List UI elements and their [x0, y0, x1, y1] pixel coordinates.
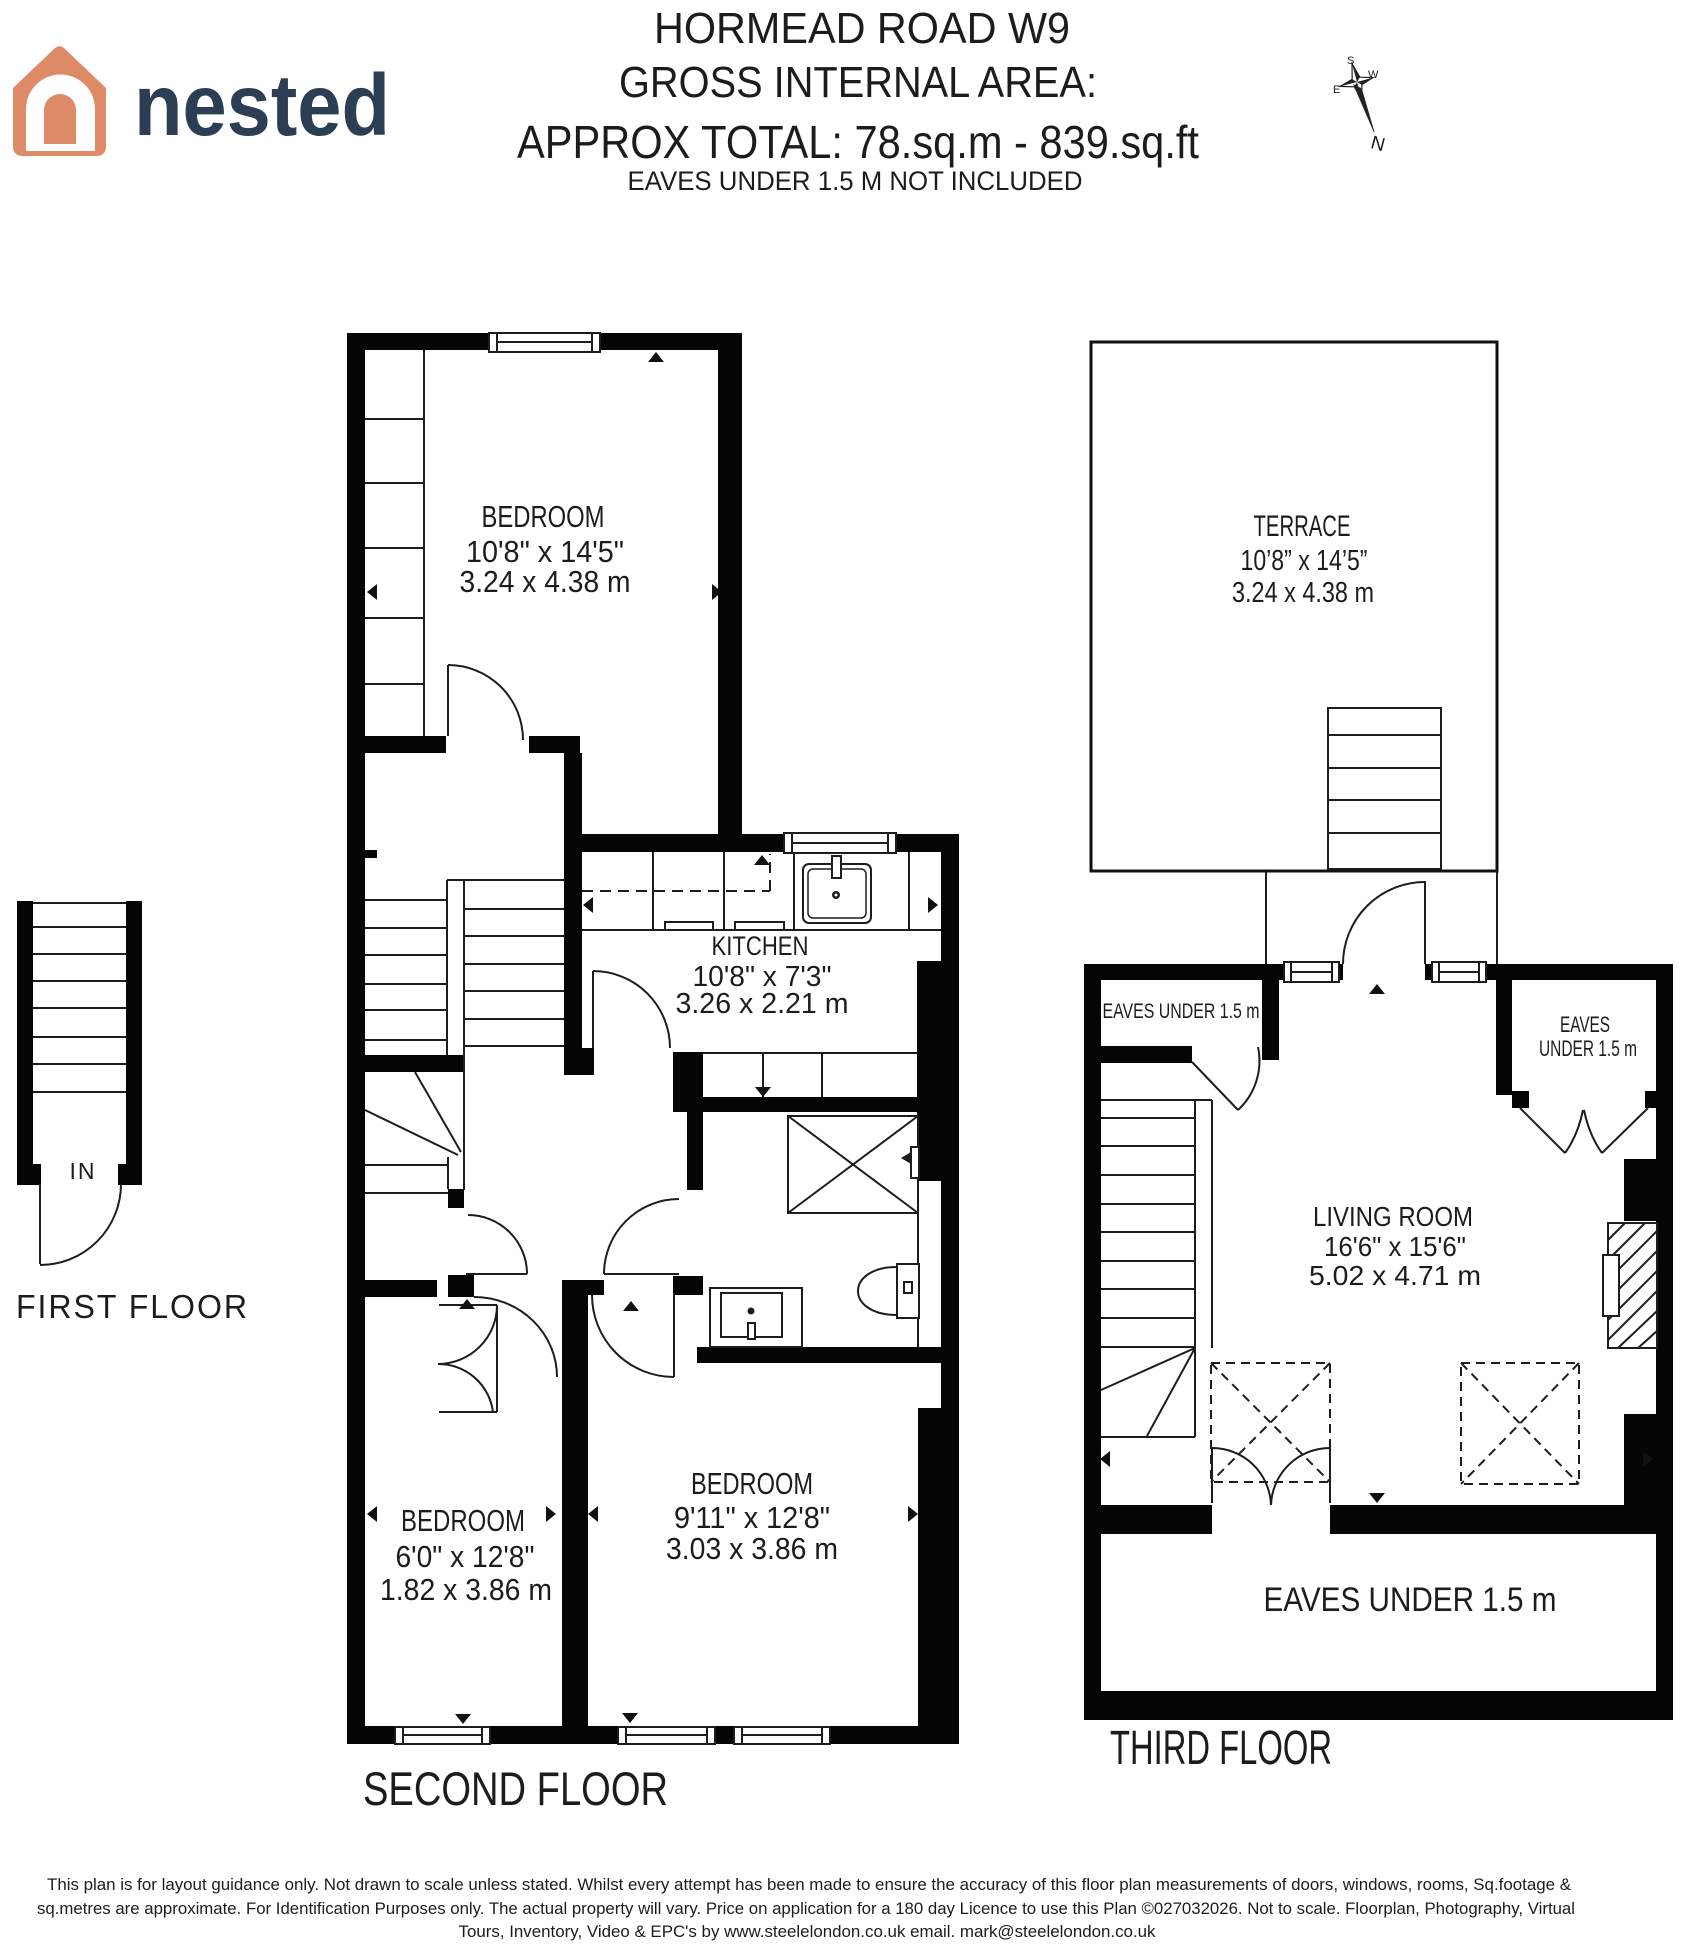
svg-text:This plan is for layout guidan: This plan is for layout guidance only. N…	[47, 1875, 1572, 1894]
svg-text:APPROX TOTAL: 78.sq.m - 839.sq: APPROX TOTAL: 78.sq.m - 839.sq.ft	[517, 116, 1199, 168]
svg-text:KITCHEN: KITCHEN	[712, 931, 809, 961]
svg-text:HORMEAD ROAD W9: HORMEAD ROAD W9	[654, 4, 1070, 53]
svg-text:EAVES: EAVES	[1560, 1012, 1610, 1037]
svg-text:EAVES UNDER 1.5 m: EAVES UNDER 1.5 m	[1103, 1000, 1260, 1023]
svg-text:S: S	[1347, 55, 1354, 67]
svg-text:EAVES UNDER 1.5 m: EAVES UNDER 1.5 m	[1264, 1581, 1557, 1619]
svg-text:SECOND FLOOR: SECOND FLOOR	[363, 1762, 668, 1815]
svg-text:W: W	[1368, 69, 1379, 81]
svg-text:nested: nested	[134, 57, 390, 154]
svg-text:UNDER 1.5 m: UNDER 1.5 m	[1539, 1036, 1637, 1061]
svg-text:GROSS INTERNAL AREA:: GROSS INTERNAL AREA:	[619, 58, 1097, 107]
svg-text:16'6" x 15'6": 16'6" x 15'6"	[1324, 1231, 1466, 1262]
svg-text:THIRD FLOOR: THIRD FLOOR	[1110, 1722, 1332, 1775]
svg-text:3.24 x 4.38 m: 3.24 x 4.38 m	[460, 564, 631, 599]
svg-text:1.82 x 3.86 m: 1.82 x 3.86 m	[380, 1572, 552, 1607]
svg-text:Tours, Inventory, Video & EPC': Tours, Inventory, Video & EPC's by www.s…	[459, 1922, 1156, 1941]
svg-text:5.02 x 4.71 m: 5.02 x 4.71 m	[1309, 1260, 1481, 1291]
svg-text:10’8” x 14’5”: 10’8” x 14’5”	[1241, 545, 1368, 577]
svg-text:EAVES UNDER 1.5 M NOT INCLUDED: EAVES UNDER 1.5 M NOT INCLUDED	[628, 166, 1083, 196]
svg-text:IN: IN	[70, 1158, 97, 1184]
svg-text:BEDROOM: BEDROOM	[401, 1503, 525, 1538]
svg-text:3.03 x 3.86 m: 3.03 x 3.86 m	[666, 1531, 838, 1566]
svg-text:9'11" x 12'8": 9'11" x 12'8"	[674, 1500, 830, 1535]
svg-text:FIRST FLOOR: FIRST FLOOR	[16, 1288, 249, 1325]
svg-text:TERRACE: TERRACE	[1254, 510, 1351, 543]
svg-text:6'0" x 12'8": 6'0" x 12'8"	[396, 1539, 535, 1574]
svg-text:3.26 x 2.21 m: 3.26 x 2.21 m	[676, 988, 849, 1020]
svg-text:BEDROOM: BEDROOM	[691, 1466, 813, 1501]
svg-text:E: E	[1333, 84, 1340, 96]
svg-text:sq.metres are approximate. For: sq.metres are approximate. For Identific…	[37, 1899, 1575, 1918]
svg-text:3.24 x 4.38 m: 3.24 x 4.38 m	[1232, 577, 1374, 609]
svg-text:LIVING ROOM: LIVING ROOM	[1313, 1201, 1473, 1232]
svg-text:BEDROOM: BEDROOM	[482, 499, 605, 534]
